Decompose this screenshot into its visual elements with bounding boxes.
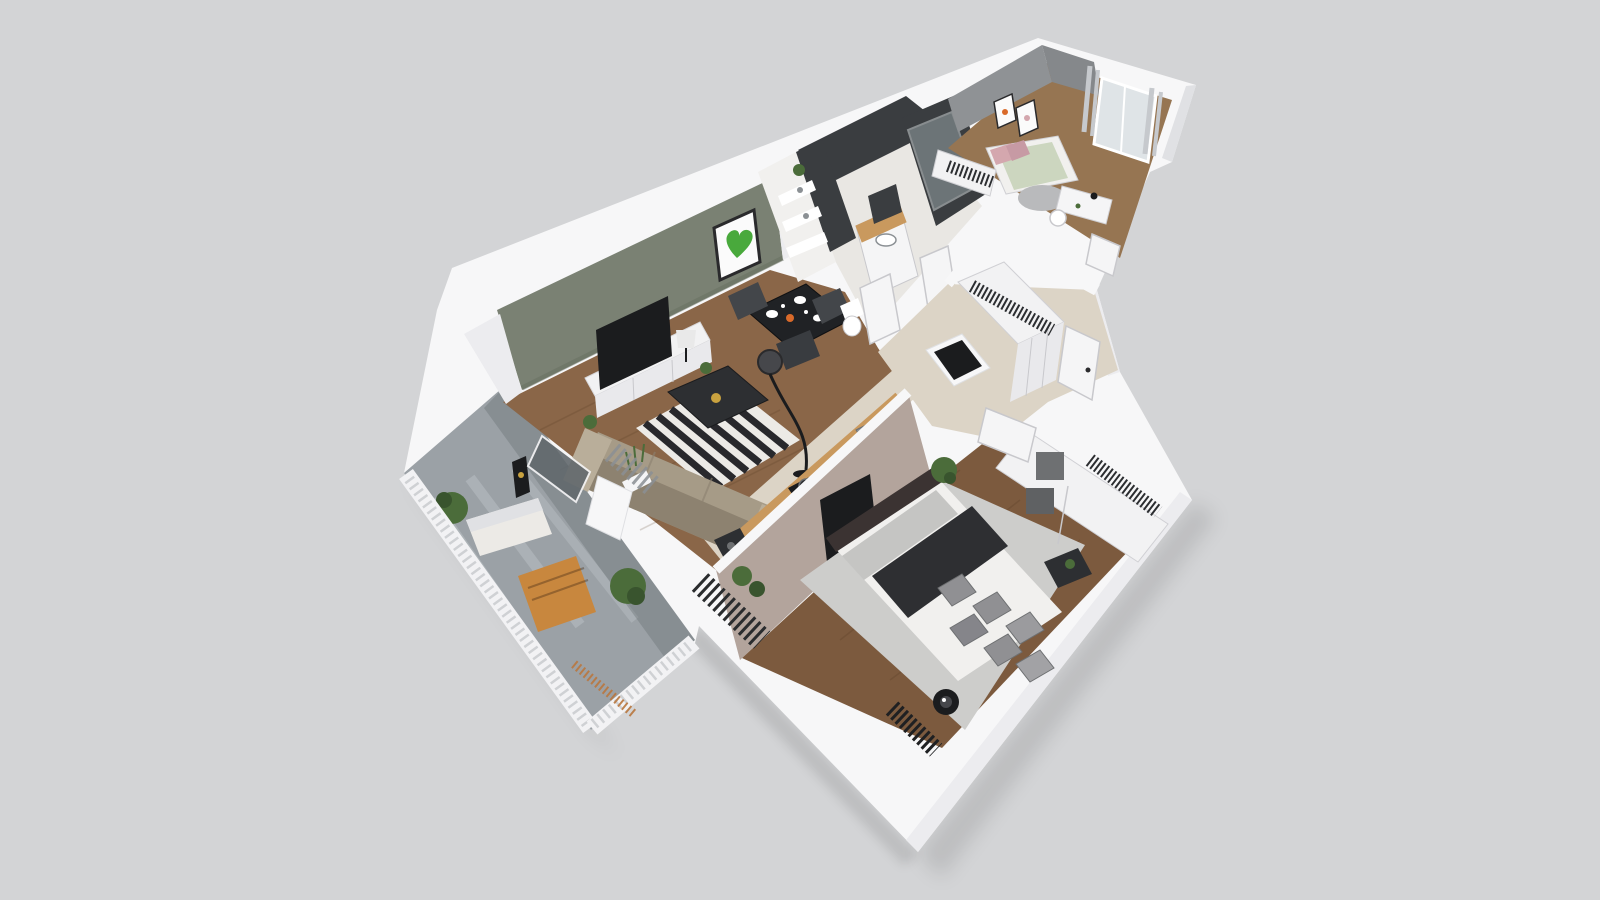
- frame-art-dot: [1024, 115, 1030, 121]
- desk-chair: [1050, 210, 1066, 226]
- lamp-bulb: [942, 698, 946, 702]
- floor-plan-render: [0, 0, 1600, 900]
- lantern-candle: [518, 472, 524, 478]
- planter-greenery: [732, 566, 752, 586]
- bathroom-plant: [793, 164, 805, 176]
- planter-greenery: [749, 581, 765, 597]
- floor-plan-stage: [0, 0, 1600, 900]
- arc-lamp-shade: [758, 350, 782, 374]
- frame-art-dot: [1002, 109, 1008, 115]
- vanity-basin: [876, 234, 896, 246]
- desk-plant: [1076, 204, 1081, 209]
- coffee-table-bowl: [711, 393, 721, 403]
- food-bowl: [786, 314, 794, 322]
- side-table-plant: [1065, 559, 1075, 569]
- storage-box: [1036, 452, 1064, 480]
- balcony-plant-shadow: [627, 587, 645, 605]
- bedroom-plant-shadow: [944, 472, 956, 484]
- towel-roll: [803, 213, 809, 219]
- desk-lamp: [1091, 193, 1098, 200]
- sideboard-plant: [583, 415, 597, 429]
- door-handle: [1086, 368, 1091, 373]
- lamp-inner: [940, 696, 952, 708]
- glass: [781, 304, 785, 308]
- table-lamp-shade: [676, 330, 696, 348]
- sideboard-plant: [700, 362, 712, 374]
- toilet: [843, 316, 861, 336]
- towel-roll: [797, 187, 803, 193]
- glass: [804, 310, 808, 314]
- plate: [794, 296, 806, 304]
- storage-box: [1026, 488, 1054, 514]
- plate: [766, 310, 778, 318]
